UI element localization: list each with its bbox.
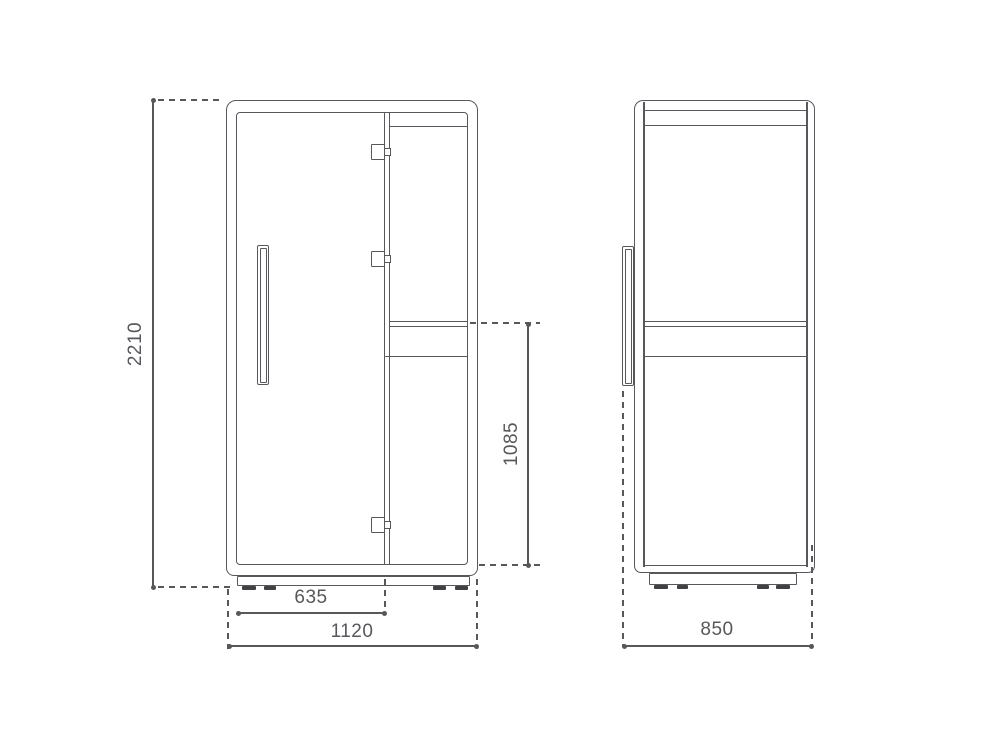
dim-endpoint — [474, 644, 479, 649]
front-inner-frame — [236, 112, 468, 565]
hinge-bottom — [371, 517, 385, 533]
hinge-top-tab — [384, 148, 391, 156]
foot — [242, 586, 256, 590]
dim-height-label: 2210 — [124, 294, 148, 394]
dim-endpoint — [382, 611, 387, 616]
foot — [677, 585, 688, 589]
dim-door-width-line — [238, 612, 384, 613]
side-worktop-line-upper — [645, 321, 806, 322]
dim-endpoint — [526, 563, 531, 568]
side-bottom-line — [645, 565, 806, 566]
dim-width-line — [229, 645, 476, 646]
extension-line — [479, 564, 542, 565]
dim-worktop-line — [527, 324, 528, 566]
foot — [433, 586, 446, 590]
technical-drawing-canvas: 2210 1085 635 1120 850 — [0, 0, 1000, 755]
foot — [776, 585, 790, 589]
dim-worktop-label: 1085 — [500, 394, 524, 494]
front-door-handle-inner — [260, 248, 267, 383]
drop-line — [476, 579, 477, 649]
side-apron-line — [645, 356, 806, 357]
dim-endpoint — [227, 644, 232, 649]
foot — [455, 586, 468, 590]
side-worktop-line-lower — [645, 326, 806, 327]
dim-width-label: 1120 — [302, 620, 402, 644]
dim-endpoint — [809, 644, 814, 649]
foot — [757, 585, 769, 589]
dim-depth-label: 850 — [667, 618, 767, 642]
side-top-rail-line-lower — [645, 125, 806, 126]
front-door-edge — [384, 113, 390, 565]
side-outer-body — [634, 100, 815, 573]
hinge-top — [371, 144, 385, 160]
drop-line — [227, 589, 228, 649]
side-top-rail-line-upper — [645, 110, 806, 111]
dim-height-line — [152, 100, 153, 587]
side-inner-line-right — [806, 102, 807, 567]
front-plinth — [237, 576, 470, 586]
front-door-handle — [257, 245, 269, 385]
side-door-handle — [622, 246, 634, 386]
side-door-handle-inner — [625, 249, 632, 384]
extension-line — [158, 586, 232, 587]
dim-endpoint — [236, 611, 241, 616]
side-plinth — [649, 573, 797, 585]
hinge-middle — [371, 251, 385, 267]
hinge-middle-tab — [384, 255, 391, 263]
drop-line — [811, 545, 812, 647]
drop-line — [622, 391, 623, 647]
dim-depth-line — [624, 645, 811, 646]
front-worktop-line-upper — [390, 321, 468, 322]
front-apron-line — [385, 356, 468, 357]
side-inner-line-left — [643, 102, 644, 567]
dim-door-width-label: 635 — [261, 586, 361, 610]
dim-endpoint — [151, 98, 156, 103]
extension-line — [158, 99, 222, 100]
dim-endpoint — [622, 644, 627, 649]
front-panel-top-rail-line — [390, 126, 468, 127]
dim-endpoint — [151, 585, 156, 590]
foot — [654, 585, 668, 589]
front-worktop-line-lower — [389, 326, 468, 327]
hinge-bottom-tab — [384, 521, 391, 529]
dim-endpoint — [526, 322, 531, 327]
drop-line — [384, 579, 385, 612]
